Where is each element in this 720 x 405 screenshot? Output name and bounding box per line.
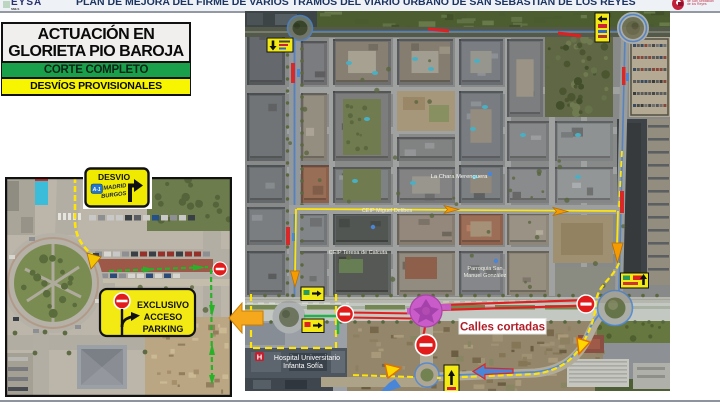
svg-text:A-1: A-1 (92, 187, 101, 193)
svg-text:CEIP Teresa de Calcuta: CEIP Teresa de Calcuta (329, 250, 388, 256)
svg-text:PARKING: PARKING (143, 324, 184, 334)
svg-text:Calles cortadas: Calles cortadas (460, 322, 545, 334)
svg-text:DESVIO: DESVIO (98, 172, 131, 182)
svg-text:Hospital Universitario: Hospital Universitario (274, 355, 340, 362)
svg-text:Infanta Sofía: Infanta Sofía (283, 363, 323, 370)
svg-text:Manuel González: Manuel González (464, 273, 507, 279)
svg-text:EXCLUSIVO: EXCLUSIVO (137, 300, 189, 310)
svg-text:H: H (257, 353, 262, 362)
svg-text:ACCESO: ACCESO (144, 312, 183, 322)
svg-text:La Chara Merenguera: La Chara Merenguera (431, 174, 488, 180)
svg-text:CEIP Miguel Delibes: CEIP Miguel Delibes (362, 208, 413, 214)
svg-text:Parroquia San: Parroquia San (467, 266, 502, 272)
